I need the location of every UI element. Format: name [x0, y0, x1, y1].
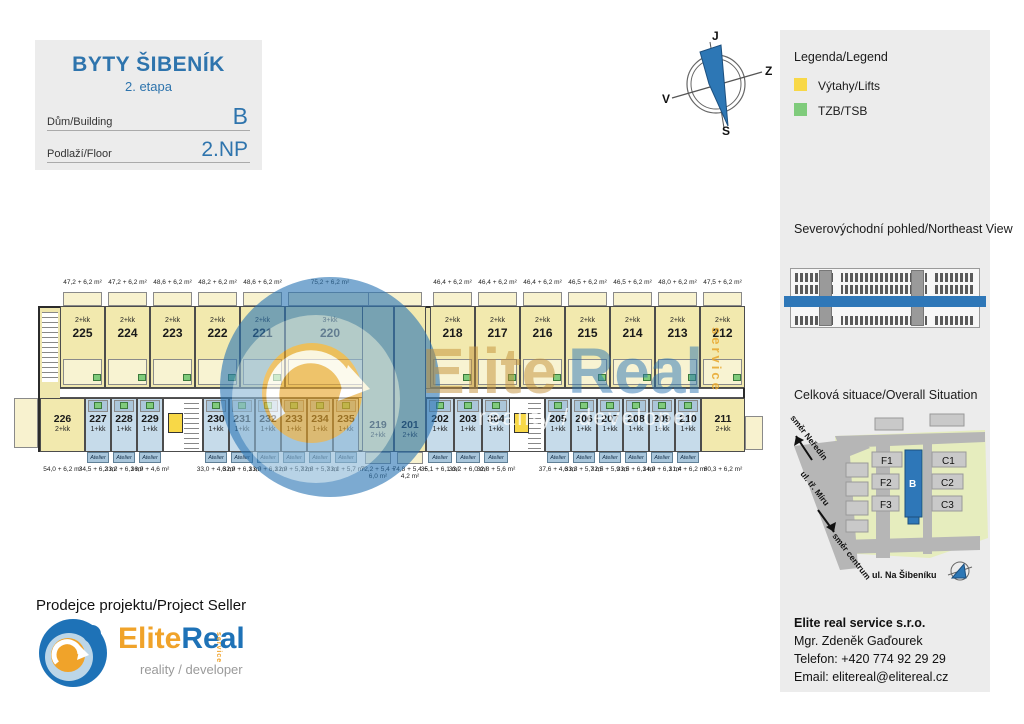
- tzb-room: [632, 402, 640, 409]
- unit-number: 224: [106, 326, 149, 340]
- lift: [514, 413, 529, 433]
- tzb-room: [508, 374, 516, 381]
- tzb-room: [463, 374, 471, 381]
- balcony: [745, 416, 763, 450]
- unit-number: 228: [112, 413, 136, 425]
- tzb-room: [228, 374, 236, 381]
- logo-wordmark: EliteReal: [118, 622, 245, 656]
- tzb-room: [658, 402, 666, 409]
- unit-number: 217: [476, 326, 519, 340]
- elitereal-logo-icon: [36, 616, 110, 690]
- unit-228: 2281+kk: [111, 398, 137, 452]
- balcony: [243, 292, 282, 306]
- unit-number: 201: [395, 419, 425, 431]
- unit-area-label: 48,2 + 6,2 m²: [192, 279, 243, 286]
- unit-number: 221: [241, 326, 284, 340]
- unit-227: 2271+kk: [85, 398, 111, 452]
- tzb-room: [290, 402, 298, 409]
- unit-area-label: 36,9 + 4,6 m²: [130, 466, 170, 473]
- unit-area-label: 48,6 + 6,2 m²: [237, 279, 288, 286]
- unit-209: 2091+kk: [649, 398, 675, 452]
- unit-type: 2+kk: [431, 317, 474, 324]
- unit-type: 2+kk: [151, 317, 194, 324]
- unit-number: 225: [61, 326, 104, 340]
- unit-213: 2+kk213: [655, 306, 700, 388]
- unit-type: 2+kk: [395, 432, 425, 439]
- unit-223: 2+kk223: [150, 306, 195, 388]
- unit-203: 2031+kk: [454, 398, 482, 452]
- unit-number: 206: [572, 413, 596, 425]
- atelier-chip: Atelier: [428, 452, 452, 463]
- unit-number: 211: [702, 413, 744, 425]
- unit-number: 230: [204, 413, 228, 425]
- unit-area-label: 47,2 + 6,2 m²: [57, 279, 108, 286]
- unit-type: 1+kk: [138, 426, 162, 433]
- atelier-chip: Atelier: [599, 452, 621, 463]
- atelier-chip: Atelier: [257, 452, 279, 463]
- unit-type: 1+kk: [455, 426, 481, 433]
- tzb-room: [598, 374, 606, 381]
- atelier-chip: Atelier: [205, 452, 227, 463]
- unit-area-label: 46,4 + 6,2 m²: [517, 279, 568, 286]
- unit-212: 2+kk212: [700, 306, 745, 388]
- balcony: [368, 292, 422, 306]
- tzb-room: [580, 402, 588, 409]
- unit-233: 2331+kk: [281, 398, 307, 452]
- tzb-room: [553, 374, 561, 381]
- unit-type: 1+kk: [86, 426, 110, 433]
- unit-type: 3+kk: [286, 317, 374, 324]
- unit-211: 2112+kk: [701, 398, 745, 452]
- unit-202: 2021+kk: [426, 398, 454, 452]
- lift: [168, 413, 183, 433]
- tzb-room: [316, 402, 324, 409]
- balcony: [433, 292, 472, 306]
- tzb-room: [464, 402, 472, 409]
- unit-218: 2+kk218: [430, 306, 475, 388]
- balcony: [14, 398, 38, 448]
- unit-number: 216: [521, 326, 564, 340]
- unit-226: 2262+kk: [40, 398, 85, 452]
- tzb-room: [273, 374, 281, 381]
- unit-number: 214: [611, 326, 654, 340]
- unit-type: 2+kk: [566, 317, 609, 324]
- stair-core: [509, 398, 545, 452]
- balcony: [63, 292, 102, 306]
- atelier-chip: Atelier: [484, 452, 508, 463]
- unit-type: 1+kk: [483, 426, 509, 433]
- unit-number: 205: [546, 413, 570, 425]
- unit-number: 232: [256, 413, 280, 425]
- unit-number: 222: [196, 326, 239, 340]
- atelier-chip: Atelier: [87, 452, 109, 463]
- balcony: [397, 452, 423, 464]
- atelier-chip: Atelier: [651, 452, 673, 463]
- tzb-room: [606, 402, 614, 409]
- tzb-room: [138, 374, 146, 381]
- unit-number: 210: [676, 413, 700, 425]
- unit-type: 1+kk: [676, 426, 700, 433]
- unit-area-label: 46,5 + 6,2 m²: [562, 279, 613, 286]
- unit-type: 2+kk: [476, 317, 519, 324]
- unit-number: 229: [138, 413, 162, 425]
- stair-core: [163, 398, 203, 452]
- unit-230: 2301+kk: [203, 398, 229, 452]
- atelier-chip: Atelier: [677, 452, 699, 463]
- logo-service-label: service: [215, 632, 222, 663]
- unit-number: 219: [363, 419, 393, 431]
- unit-216: 2+kk216: [520, 306, 565, 388]
- unit-type: 2+kk: [702, 426, 744, 433]
- floorplan-sheet: BYTY ŠIBENÍK 2. etapa Dům/Building B Pod…: [0, 0, 1024, 724]
- unit-type: 1+kk: [546, 426, 570, 433]
- balcony: [288, 292, 372, 306]
- balcony: [613, 292, 652, 306]
- tzb-room: [643, 374, 651, 381]
- atelier-chip: Atelier: [335, 452, 357, 463]
- unit-type: 1+kk: [624, 426, 648, 433]
- balcony: [153, 292, 192, 306]
- unit-area-label: 46,4 + 6,2 m²: [427, 279, 478, 286]
- balcony: [568, 292, 607, 306]
- unit-area-label: 46,5 + 6,2 m²: [607, 279, 658, 286]
- unit-area-label: 48,6 + 6,2 m²: [147, 279, 198, 286]
- unit-type: 1+kk: [598, 426, 622, 433]
- unit-type: 1+kk: [112, 426, 136, 433]
- balcony: [658, 292, 697, 306]
- unit-area-label: 47,2 + 6,2 m²: [102, 279, 153, 286]
- tzb-room: [238, 402, 246, 409]
- unit-area-label: 46,4 + 6,2 m²: [472, 279, 523, 286]
- unit-type: 1+kk: [282, 426, 306, 433]
- tzb-room: [436, 402, 444, 409]
- unit-217: 2+kk217: [475, 306, 520, 388]
- unit-type: 1+kk: [308, 426, 332, 433]
- unit-type: 2+kk: [106, 317, 149, 324]
- atelier-chip: Atelier: [309, 452, 331, 463]
- tzb-room: [120, 402, 128, 409]
- unit-area-label: 60,3 + 6,2 m²: [696, 466, 750, 473]
- tzb-room: [733, 374, 741, 381]
- unit-type: 1+kk: [204, 426, 228, 433]
- unit-number: 226: [41, 413, 84, 425]
- atelier-chip: Atelier: [625, 452, 647, 463]
- unit-207: 2071+kk: [597, 398, 623, 452]
- unit-type: 2+kk: [611, 317, 654, 324]
- atelier-chip: Atelier: [283, 452, 305, 463]
- unit-222: 2+kk222: [195, 306, 240, 388]
- atelier-chip: Atelier: [113, 452, 135, 463]
- unit-type: 1+kk: [334, 426, 358, 433]
- tzb-room: [684, 402, 692, 409]
- atelier-chip: Atelier: [573, 452, 595, 463]
- unit-number: 207: [598, 413, 622, 425]
- unit-219: 2192+kk: [362, 306, 394, 452]
- unit-number: 235: [334, 413, 358, 425]
- balcony: [365, 452, 391, 464]
- unit-area-label: 47,5 + 6,2 m²: [697, 279, 748, 286]
- unit-229: 2291+kk: [137, 398, 163, 452]
- unit-type: 2+kk: [656, 317, 699, 324]
- tzb-room: [146, 402, 154, 409]
- unit-206: 2061+kk: [571, 398, 597, 452]
- balcony: [703, 292, 742, 306]
- tzb-room: [554, 402, 562, 409]
- unit-number: 234: [308, 413, 332, 425]
- unit-type: 2+kk: [61, 317, 104, 324]
- unit-235: 2351+kk: [333, 398, 359, 452]
- unit-225: 2+kk225: [60, 306, 105, 388]
- tzb-room: [183, 374, 191, 381]
- unit-number: 223: [151, 326, 194, 340]
- tzb-room: [492, 402, 500, 409]
- unit-221: 2+kk221: [240, 306, 285, 388]
- unit-number: 304: [483, 413, 509, 425]
- unit-number: 212: [701, 326, 744, 340]
- unit-area-label: 48,0 + 6,2 m²: [652, 279, 703, 286]
- unit-205: 2051+kk: [545, 398, 571, 452]
- unit-231: 2311+kk: [229, 398, 255, 452]
- unit-number: 213: [656, 326, 699, 340]
- unit-type: 2+kk: [363, 432, 393, 439]
- atelier-chip: Atelier: [139, 452, 161, 463]
- unit-type: 1+kk: [427, 426, 453, 433]
- unit-214: 2+kk214: [610, 306, 655, 388]
- unit-type: 2+kk: [196, 317, 239, 324]
- unit-type: 2+kk: [41, 426, 84, 433]
- unit-type: 1+kk: [572, 426, 596, 433]
- balcony: [523, 292, 562, 306]
- floor-plan: 47,2 + 6,2 m²2+kk22547,2 + 6,2 m²2+kk224…: [0, 0, 1024, 724]
- atelier-chip: Atelier: [547, 452, 569, 463]
- unit-208: 2081+kk: [623, 398, 649, 452]
- corridor: [60, 388, 362, 398]
- unit-number: 227: [86, 413, 110, 425]
- corridor: [426, 388, 743, 398]
- unit-type: 2+kk: [701, 317, 744, 324]
- unit-number: 218: [431, 326, 474, 340]
- unit-210: 2101+kk: [675, 398, 701, 452]
- stairs-left: [42, 312, 58, 382]
- unit-area-label: 32,8 + 5,6 m²: [476, 466, 516, 473]
- unit-304: 3041+kk: [482, 398, 510, 452]
- unit-area-label: 75,2 + 6,2 m²: [282, 279, 378, 286]
- balcony: [478, 292, 517, 306]
- unit-number: 209: [650, 413, 674, 425]
- tzb-room: [342, 402, 350, 409]
- unit-215: 2+kk215: [565, 306, 610, 388]
- unit-type: 2+kk: [241, 317, 284, 324]
- balcony: [198, 292, 237, 306]
- unit-232: 2321+kk: [255, 398, 281, 452]
- logo-tagline: reality / developer: [140, 662, 243, 677]
- unit-type: 1+kk: [256, 426, 280, 433]
- unit-234: 2341+kk: [307, 398, 333, 452]
- unit-number: 220: [286, 326, 374, 340]
- unit-224: 2+kk224: [105, 306, 150, 388]
- unit-number: 215: [566, 326, 609, 340]
- tzb-room: [93, 374, 101, 381]
- tzb-room: [688, 374, 696, 381]
- unit-number: 202: [427, 413, 453, 425]
- unit-type: 1+kk: [650, 426, 674, 433]
- tzb-room: [212, 402, 220, 409]
- atelier-chip: Atelier: [456, 452, 480, 463]
- tzb-room: [264, 402, 272, 409]
- balcony: [108, 292, 147, 306]
- unit-number: 233: [282, 413, 306, 425]
- unit-201: 2012+kk: [394, 306, 426, 452]
- unit-type: 2+kk: [521, 317, 564, 324]
- unit-type: 1+kk: [230, 426, 254, 433]
- unit-number: 208: [624, 413, 648, 425]
- atelier-chip: Atelier: [231, 452, 253, 463]
- unit-number: 203: [455, 413, 481, 425]
- seller-heading: Prodejce projektu/Project Seller: [36, 597, 246, 614]
- tzb-room: [94, 402, 102, 409]
- unit-number: 231: [230, 413, 254, 425]
